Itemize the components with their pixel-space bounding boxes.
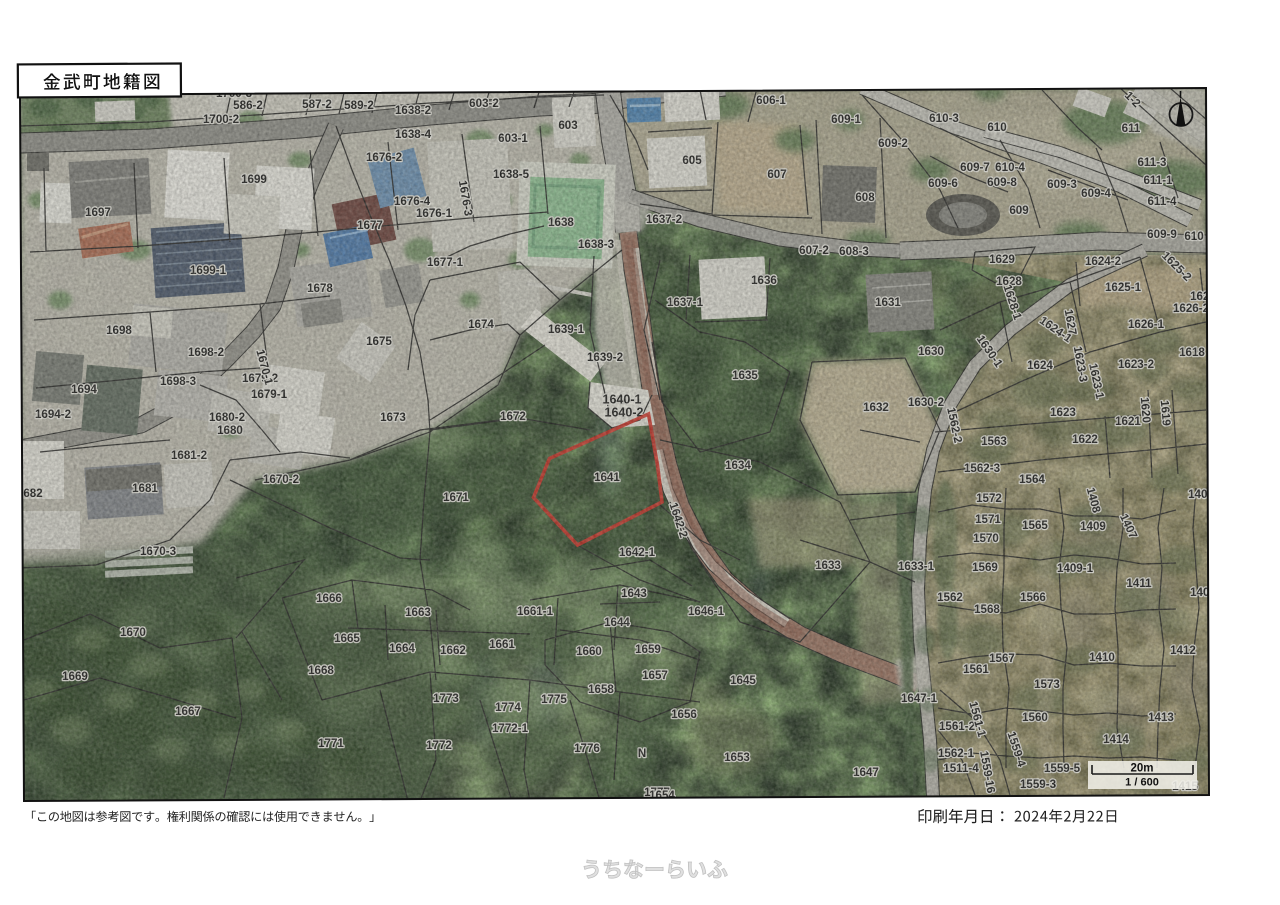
svg-text:1 / 600: 1 / 600 [1125, 777, 1159, 789]
svg-text:20m: 20m [1130, 763, 1153, 775]
